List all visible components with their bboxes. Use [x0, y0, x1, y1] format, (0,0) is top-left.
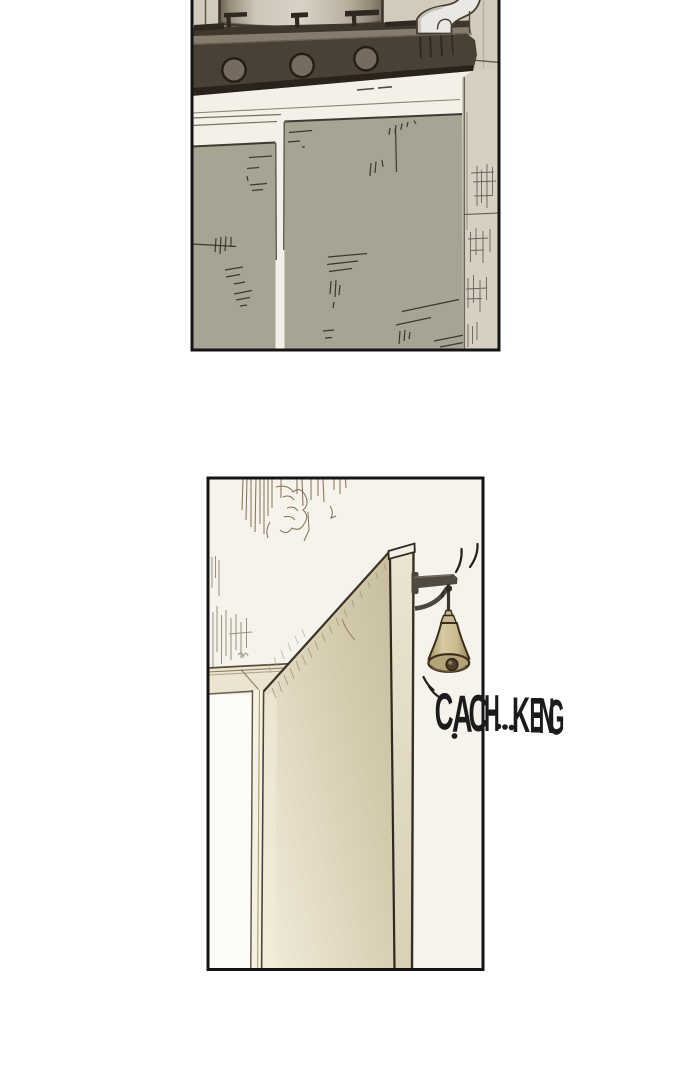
svg-text:G: G	[548, 690, 565, 747]
svg-text:K: K	[512, 688, 530, 744]
svg-text:H: H	[484, 685, 500, 742]
svg-text:C: C	[434, 682, 454, 741]
